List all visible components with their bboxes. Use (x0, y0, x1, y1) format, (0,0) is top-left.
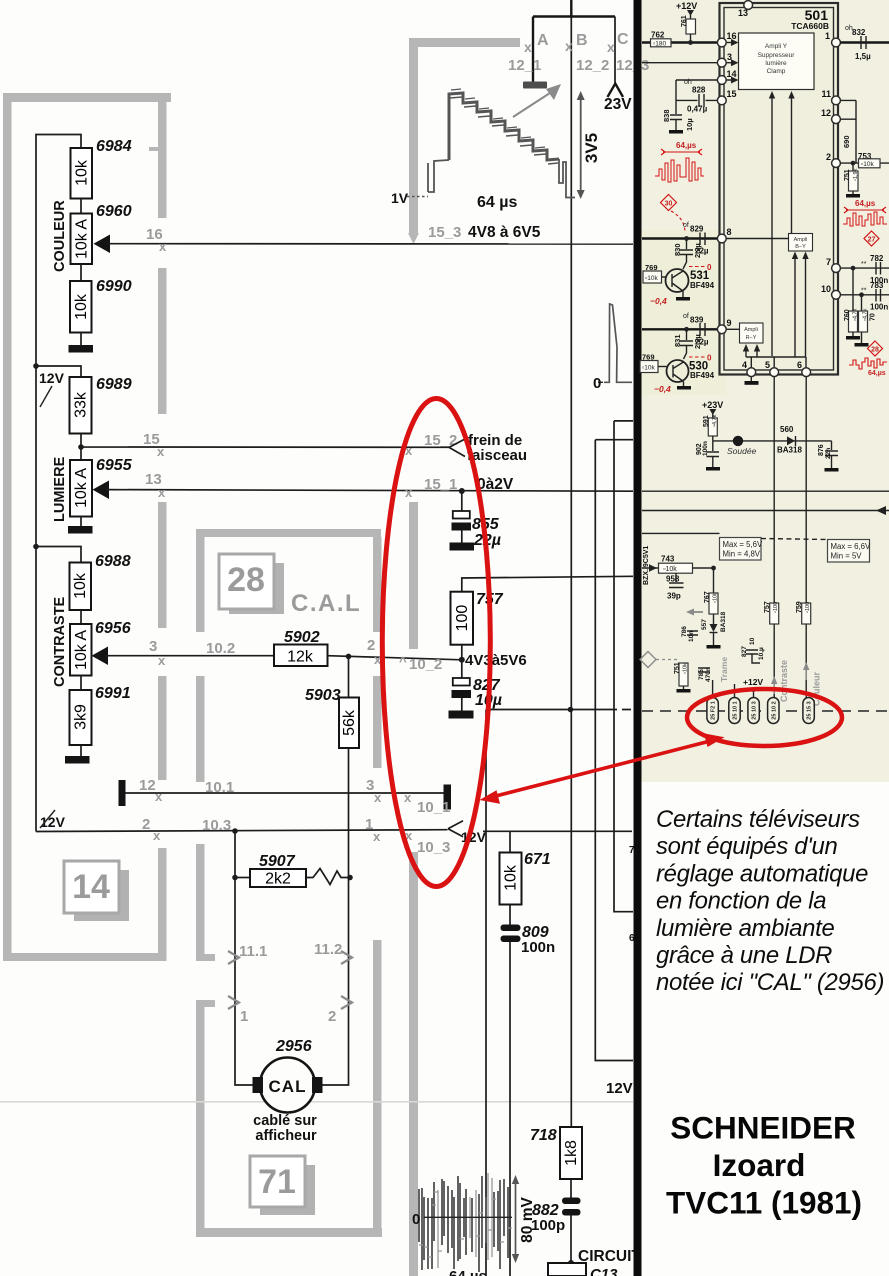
svg-text:▫4,7k: ▫4,7k (863, 308, 869, 321)
svg-text:10,µ: 10,µ (758, 647, 765, 660)
svg-text:−0,4: −0,4 (654, 384, 671, 394)
svg-text:CAL: CAL (269, 1077, 307, 1096)
svg-text:10_2: 10_2 (409, 656, 442, 673)
svg-text:6991: 6991 (95, 685, 131, 702)
svg-text:4V3à5V6: 4V3à5V6 (465, 652, 527, 669)
svg-text:x: x (405, 485, 413, 500)
svg-text:5: 5 (765, 360, 770, 370)
svg-text:690: 690 (842, 135, 851, 148)
svg-text:767: 767 (704, 591, 711, 603)
svg-text:12V: 12V (606, 1080, 633, 1097)
svg-text:12: 12 (821, 108, 831, 118)
svg-text:15_1: 15_1 (424, 476, 457, 493)
svg-text:Trame: Trame (719, 657, 729, 682)
svg-text:0: 0 (593, 375, 601, 392)
svg-text:10k: 10k (74, 159, 91, 186)
svg-text:1V: 1V (391, 190, 409, 206)
svg-text:Certains téléviseurs: Certains téléviseurs (656, 806, 860, 833)
svg-text:15_3: 15_3 (428, 224, 461, 241)
svg-text:2: 2 (142, 816, 150, 833)
svg-text:6988: 6988 (95, 553, 131, 570)
svg-text:6956: 6956 (95, 620, 131, 637)
svg-text:827: 827 (741, 646, 748, 657)
svg-text:10k A: 10k A (73, 468, 90, 508)
svg-text:3: 3 (727, 52, 732, 62)
svg-text:x: x (157, 444, 165, 459)
svg-text:560: 560 (780, 425, 794, 434)
svg-text:761: 761 (681, 15, 688, 27)
svg-text:Ampli: Ampli (744, 327, 758, 333)
svg-text:Max = 5,6V: Max = 5,6V (723, 540, 763, 549)
svg-text:832: 832 (852, 28, 866, 37)
svg-text:11.1: 11.1 (239, 943, 267, 960)
svg-text:1: 1 (825, 31, 830, 41)
svg-text:743: 743 (661, 555, 675, 564)
svg-text:11.2: 11.2 (314, 941, 342, 958)
svg-text:7: 7 (826, 257, 831, 267)
svg-text:831: 831 (673, 334, 682, 347)
svg-text:8: 8 (727, 227, 732, 237)
svg-text:of: of (683, 222, 689, 229)
svg-text:▫10k: ▫10k (642, 365, 656, 372)
svg-text:TVC11 (1981): TVC11 (1981) (666, 1185, 862, 1221)
svg-text:SCHNEIDER: SCHNEIDER (670, 1110, 856, 1146)
svg-text:4: 4 (742, 360, 747, 370)
svg-text:6990: 6990 (96, 278, 132, 295)
svg-text:0: 0 (412, 1211, 420, 1228)
svg-text:en fonction de la: en fonction de la (656, 888, 826, 915)
svg-text:CIRCUIT: CIRCUIT (578, 1248, 641, 1265)
svg-text:23V: 23V (604, 96, 632, 113)
svg-text:80 mV: 80 mV (519, 1197, 536, 1243)
svg-text:0,47µ: 0,47µ (687, 105, 708, 114)
svg-text:14: 14 (72, 868, 110, 906)
svg-text:BF494: BF494 (690, 371, 715, 380)
svg-text:100: 100 (454, 605, 471, 632)
svg-text:12k: 12k (287, 649, 314, 666)
svg-text:10.1: 10.1 (205, 779, 234, 796)
svg-text:10k A: 10k A (74, 219, 91, 259)
svg-text:Izoard: Izoard (713, 1147, 806, 1183)
svg-text:100n: 100n (870, 303, 888, 312)
svg-text:9: 9 (727, 318, 732, 328)
svg-text:BZX..9C5V1: BZX..9C5V1 (643, 546, 650, 585)
svg-text:Contraste: Contraste (779, 660, 789, 702)
svg-text:25 10 3: 25 10 3 (752, 701, 758, 719)
svg-text:Min = 4,8V: Min = 4,8V (723, 550, 761, 559)
svg-text:x: x (524, 39, 532, 55)
svg-text:▫10k: ▫10k (663, 566, 677, 573)
svg-text:x: x (404, 790, 412, 805)
svg-text:4V8 à 6V5: 4V8 à 6V5 (468, 224, 541, 241)
svg-text:▫100: ▫100 (805, 602, 811, 613)
svg-text:10k: 10k (73, 293, 90, 320)
svg-text:6984: 6984 (96, 138, 132, 155)
svg-text:12_1: 12_1 (508, 57, 541, 74)
svg-text:faisceau: faisceau (467, 447, 527, 464)
svg-text:470n: 470n (705, 667, 712, 682)
svg-text:10µ: 10µ (685, 118, 694, 131)
svg-text:12V: 12V (40, 814, 66, 830)
svg-text:lumière ambiante: lumière ambiante (656, 915, 834, 942)
svg-text:oh: oh (684, 79, 692, 86)
svg-text:6989: 6989 (96, 376, 132, 393)
svg-text:6960: 6960 (96, 203, 132, 220)
svg-text:3k9: 3k9 (73, 704, 90, 730)
svg-text:100n: 100n (521, 939, 555, 956)
svg-text:27: 27 (868, 237, 876, 244)
svg-text:BA318: BA318 (777, 446, 802, 455)
svg-text:0à2V: 0à2V (477, 476, 514, 493)
svg-text:25 10 2: 25 10 2 (771, 701, 777, 719)
svg-text:760: 760 (844, 309, 851, 321)
svg-text:16: 16 (727, 31, 737, 41)
svg-text:Suppresseur: Suppresseur (758, 52, 796, 59)
svg-text:C13: C13 (590, 1266, 618, 1276)
svg-text:1: 1 (240, 1008, 248, 1025)
svg-text:70: 70 (870, 313, 877, 321)
svg-text:Clamp: Clamp (767, 68, 786, 75)
svg-text:COULEUR: COULEUR (52, 200, 68, 272)
svg-text:829: 829 (690, 225, 704, 234)
svg-text:64 µs: 64 µs (449, 1268, 487, 1276)
svg-text:785: 785 (698, 669, 705, 680)
svg-text:30: 30 (665, 201, 673, 208)
svg-text:▫10k: ▫10k (713, 592, 719, 603)
svg-text:2: 2 (826, 152, 831, 162)
svg-text:783: 783 (870, 281, 884, 290)
svg-text:876: 876 (818, 444, 825, 456)
svg-text:A: A (537, 32, 549, 49)
svg-text:▫4,7k: ▫4,7k (712, 414, 718, 427)
svg-text:▫100: ▫100 (773, 602, 779, 613)
svg-text:TCA660B: TCA660B (791, 21, 829, 31)
svg-text:5902: 5902 (284, 629, 320, 646)
svg-text:25 10 1: 25 10 1 (733, 701, 739, 719)
svg-text:22n: 22n (825, 448, 832, 459)
svg-text:10.2: 10.2 (206, 640, 235, 657)
svg-text:10: 10 (821, 284, 831, 294)
svg-text:671: 671 (524, 851, 551, 868)
svg-text:762: 762 (651, 31, 665, 40)
svg-text:▫180: ▫180 (653, 40, 667, 47)
svg-text:64,µs: 64,µs (868, 370, 886, 377)
svg-text:6955: 6955 (96, 457, 133, 474)
svg-text:838: 838 (662, 109, 671, 122)
svg-text:39p: 39p (667, 592, 681, 601)
svg-text:5903: 5903 (305, 687, 341, 704)
svg-text:958: 958 (666, 575, 680, 584)
svg-text:2k2: 2k2 (265, 871, 291, 888)
svg-text:757: 757 (764, 601, 771, 613)
svg-text:64,µs: 64,µs (676, 141, 697, 150)
svg-text:28: 28 (871, 347, 879, 354)
svg-text:−0,4: −0,4 (650, 296, 667, 306)
svg-text:B−Y: B−Y (795, 244, 806, 250)
svg-text:100n: 100n (702, 441, 709, 456)
svg-text:lumière: lumière (765, 60, 787, 67)
svg-text:afficheur: afficheur (255, 1128, 317, 1144)
svg-text:x: x (565, 38, 573, 54)
svg-text:2956: 2956 (275, 1038, 312, 1055)
svg-text:782: 782 (870, 254, 884, 263)
svg-text:839: 839 (690, 316, 704, 325)
svg-text:64 µs: 64 µs (477, 194, 517, 211)
svg-text:+12V: +12V (676, 1, 697, 11)
svg-text:71: 71 (258, 1163, 296, 1201)
svg-text:10: 10 (749, 637, 756, 645)
svg-text:28: 28 (227, 561, 265, 599)
svg-text:x: x (159, 239, 167, 254)
svg-text:33k: 33k (73, 391, 90, 418)
svg-text:C.A.L: C.A.L (291, 590, 361, 617)
svg-text:^: ^ (399, 654, 407, 669)
svg-text:3V5: 3V5 (582, 133, 601, 163)
svg-text:+23V: +23V (702, 400, 723, 410)
svg-text:x: x (158, 653, 166, 668)
svg-text:BA318: BA318 (720, 611, 727, 632)
svg-text:5907: 5907 (259, 853, 296, 870)
svg-text:x: x (153, 828, 161, 843)
svg-text:x: x (374, 790, 382, 805)
svg-text:10_1: 10_1 (417, 799, 450, 816)
svg-text:réglage automatique: réglage automatique (656, 860, 868, 887)
svg-text:▫10k: ▫10k (683, 663, 689, 674)
svg-text:grâce à une LDR: grâce à une LDR (656, 942, 832, 969)
svg-text:64,µs: 64,µs (855, 199, 876, 208)
svg-text:786: 786 (681, 626, 688, 637)
svg-text:100p: 100p (531, 1217, 565, 1234)
svg-text:C: C (617, 31, 629, 48)
svg-text:sont équipés d'un: sont équipés d'un (656, 833, 837, 860)
svg-text:751: 751 (844, 169, 851, 181)
svg-text:1k8: 1k8 (563, 1140, 580, 1166)
svg-text:56k: 56k (341, 709, 358, 736)
svg-text:12_2: 12_2 (576, 57, 609, 74)
svg-text:Min = 5V: Min = 5V (831, 552, 863, 561)
svg-text:▫4,7k: ▫4,7k (853, 308, 859, 321)
svg-text:cablé sur: cablé sur (253, 1113, 317, 1129)
svg-text:2,2µ: 2,2µ (693, 243, 702, 258)
svg-text:Soudée: Soudée (727, 446, 757, 456)
svg-text:10k A: 10k A (73, 630, 90, 670)
svg-text:BF494: BF494 (690, 281, 715, 290)
svg-text:10_3: 10_3 (417, 839, 450, 856)
svg-text:10n: 10n (688, 631, 695, 642)
svg-text:3: 3 (149, 638, 157, 655)
svg-text:759: 759 (796, 601, 803, 613)
svg-text:Ampli: Ampli (794, 237, 808, 243)
svg-text:830: 830 (673, 243, 682, 256)
svg-text:CONTRASTE: CONTRASTE (52, 596, 68, 687)
svg-text:15: 15 (727, 89, 737, 99)
svg-text:LUMIERE: LUMIERE (52, 456, 68, 522)
svg-text:R−Y: R−Y (746, 335, 757, 341)
svg-text:▫10k: ▫10k (645, 275, 659, 282)
svg-text:828: 828 (692, 86, 706, 95)
svg-text:of: of (683, 313, 689, 320)
svg-text:10k: 10k (72, 572, 89, 599)
svg-text:12: 12 (139, 777, 156, 794)
svg-text:6: 6 (797, 360, 802, 370)
svg-text:▫1,9k: ▫1,9k (853, 168, 859, 181)
svg-text:1,5µ: 1,5µ (855, 52, 871, 61)
svg-text:▫10k: ▫10k (861, 161, 875, 168)
svg-text:591: 591 (703, 415, 710, 427)
svg-text:Ampli Y: Ampli Y (765, 43, 788, 50)
svg-text:**: ** (861, 261, 867, 268)
svg-text:+12V: +12V (743, 677, 763, 687)
svg-text:x: x (607, 39, 615, 55)
svg-text:25 F2 1: 25 F2 1 (711, 701, 717, 720)
svg-text:25 15 3: 25 15 3 (807, 701, 813, 719)
svg-text:B: B (576, 32, 588, 49)
svg-text:x: x (155, 789, 163, 804)
svg-text:12_3: 12_3 (616, 57, 649, 74)
svg-text:10k: 10k (503, 864, 520, 891)
svg-text:2: 2 (328, 1008, 336, 1025)
svg-text:x: x (158, 485, 166, 500)
svg-text:x: x (373, 829, 381, 844)
svg-text:2,2µ: 2,2µ (693, 334, 702, 349)
svg-text:557: 557 (701, 619, 708, 630)
svg-text:oh: oh (845, 25, 853, 32)
svg-text:751: 751 (674, 662, 681, 674)
svg-text:10.3: 10.3 (202, 817, 231, 834)
svg-text:11: 11 (821, 89, 831, 99)
svg-text:12V: 12V (39, 370, 65, 386)
svg-text:notée ici "CAL" (2956): notée ici "CAL" (2956) (656, 969, 884, 996)
svg-text:718: 718 (530, 1127, 557, 1144)
svg-text:14: 14 (727, 69, 737, 79)
svg-text:Max = 6,6V: Max = 6,6V (831, 542, 871, 551)
